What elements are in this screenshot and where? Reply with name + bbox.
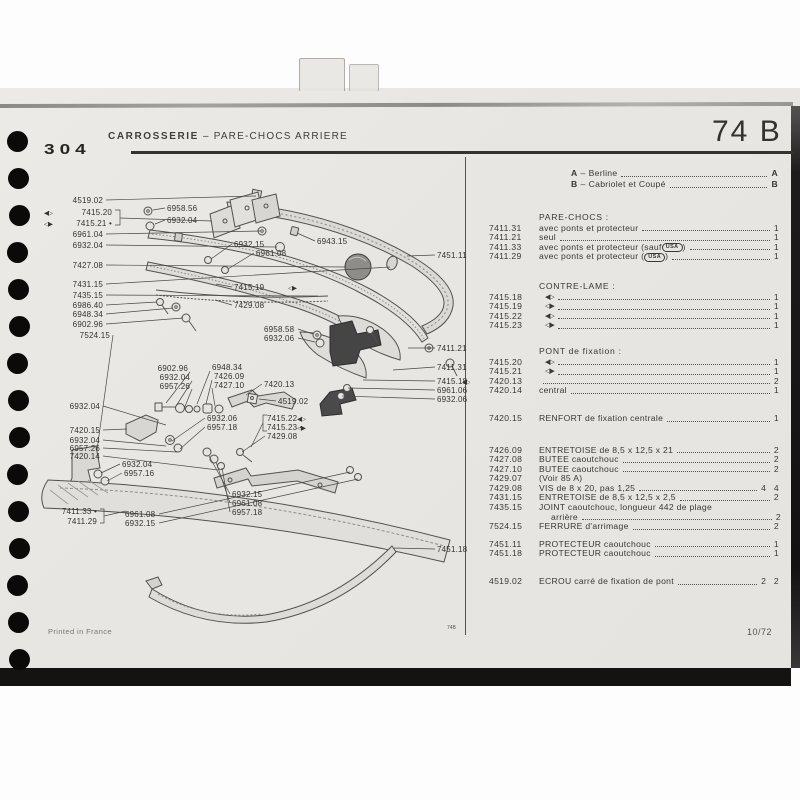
leader-line — [251, 423, 263, 447]
parts-row: 7411.29avec ponts et protecteur (USA)1 — [489, 252, 781, 262]
parts-section: PONT de fixation :7415.20◀▷17415.21◁▶174… — [489, 347, 781, 396]
part-reference: 7451.18 — [489, 549, 539, 559]
parts-row: 7426.09ENTRETOISE de 8,5 x 12,5 x 212 — [489, 446, 781, 456]
diagram-part-label: 4519.02 — [278, 397, 309, 406]
side-right-icon: ◁▶ — [539, 302, 554, 312]
diagram-part-label: 7411.33 • — [62, 507, 97, 516]
diagram-part-label: 7524.15 — [80, 331, 111, 340]
side-left-icon: ◀▷ — [539, 312, 554, 322]
plate-code-small: 74B — [447, 625, 456, 631]
dotted-leader — [623, 462, 770, 463]
diagram-part-label: 6932.04 — [70, 402, 101, 411]
part-reference: 7524.15 — [489, 522, 539, 532]
leader-line — [106, 231, 260, 234]
parts-row: 7411.31avec ponts et protecteur1 — [489, 224, 781, 234]
diagram-part-label: 6932.15 — [232, 490, 263, 499]
diagram-part-label: 6948.34 — [212, 363, 243, 372]
leader-line — [106, 302, 157, 305]
leader-line — [103, 448, 177, 452]
dotted-leader — [678, 584, 757, 585]
parts-section: 7451.11PROTECTEUR caoutchouc17451.18PROT… — [489, 540, 781, 559]
diagram-part-label: 7427.08 — [73, 261, 104, 270]
part-reference: 7435.15 — [489, 503, 539, 513]
leader-line — [120, 218, 212, 221]
side-left-icon: ◀▷ — [462, 378, 470, 386]
scanned-catalog-page: 304 CARROSSERIE – PARE-CHOCS ARRIERE 74 … — [0, 0, 800, 800]
diagram-part-label: 6961.08 — [256, 249, 287, 258]
dotted-leader — [558, 309, 770, 310]
plate-number: 74 B — [712, 115, 782, 149]
quantity: 1 — [774, 386, 781, 396]
diagram-part-label: 6961.04 — [73, 230, 104, 239]
dotted-leader — [621, 176, 767, 177]
leader-line — [153, 208, 165, 210]
dotted-leader — [690, 249, 770, 250]
leader-line — [172, 418, 205, 441]
parts-row: 7427.10BUTEE caoutchouc2 — [489, 465, 781, 475]
diagram-part-label: 6932.04 — [73, 241, 104, 250]
parts-section-title: PONT de fixation : — [539, 347, 781, 357]
dotted-leader — [670, 187, 768, 188]
leader-line — [101, 464, 120, 473]
part-description-suffix: ) — [683, 243, 686, 253]
parts-section: CONTRE-LAME :7415.18◀▷17415.19◁▶17415.22… — [489, 282, 781, 331]
leader-line — [363, 380, 435, 381]
dotted-leader — [560, 240, 770, 241]
leader-line — [297, 233, 315, 241]
dotted-leader — [558, 318, 770, 319]
dotted-leader — [655, 556, 770, 557]
parts-section-title: PARE-CHOCS : — [539, 213, 781, 223]
diagram-part-label: 6957.16 — [124, 469, 155, 478]
part-description: FERRURE d'arrimage — [539, 522, 629, 532]
leader-line — [393, 367, 435, 370]
part-reference: 7420.14 — [489, 386, 539, 396]
dotted-leader — [639, 490, 757, 491]
diagram-part-label: 7429.08 — [234, 301, 265, 310]
parts-section: 7426.09ENTRETOISE de 8,5 x 12,5 x 212742… — [489, 446, 781, 532]
parts-row: 7429.07(Voir 85 A) — [489, 474, 781, 484]
diagram-part-label: 7411.31 — [437, 363, 467, 372]
diagram-part-label: 6961.08 — [232, 499, 263, 508]
section-name: CARROSSERIE — [108, 131, 199, 142]
dotted-leader — [543, 383, 770, 384]
quantity: 1 — [774, 252, 781, 262]
diagram-part-label: 7415.22 — [267, 414, 298, 423]
dotted-leader — [642, 230, 770, 231]
leader-line — [206, 380, 212, 404]
dotted-leader — [623, 471, 770, 472]
part-description: avec ponts et protecteur ( — [539, 252, 644, 262]
quantity: 2 — [774, 493, 781, 503]
diagram-part-label: 7415.19 — [234, 283, 265, 292]
parts-section: 4519.02ECROU carré de fixation de pont2 … — [489, 577, 781, 587]
leader-line — [228, 253, 254, 269]
part-description-suffix: ) — [665, 252, 668, 262]
parts-row-continuation: arrière2 — [489, 513, 781, 523]
diagram-part-label: 7451.18 — [437, 545, 468, 554]
dotted-leader — [677, 452, 770, 453]
section-subtitle: PARE-CHOCS ARRIERE — [214, 131, 348, 142]
issue-date: 10/72 — [747, 627, 772, 637]
leader-line — [103, 429, 127, 430]
part-reference: 7420.15 — [489, 414, 539, 424]
diagram-part-label: 6958.58 — [264, 325, 295, 334]
legend-value: A — [771, 168, 778, 179]
diagram-part-label: 6961.08 — [125, 510, 156, 519]
parts-row: 7415.18◀▷1 — [489, 293, 781, 303]
diagram-part-label: 6932.04 — [167, 216, 198, 225]
part-description: RENFORT de fixation centrale — [539, 414, 663, 424]
parts-row: 7415.23◁▶1 — [489, 321, 781, 331]
diagram-part-label: 6932.04 — [160, 373, 191, 382]
leader-line — [180, 427, 205, 449]
binder-hole — [9, 649, 30, 670]
side-left-icon: ◀▷ — [539, 293, 554, 303]
parts-section-title: CONTRE-LAME : — [539, 282, 781, 292]
side-right-icon: ◁▶ — [539, 367, 554, 377]
quantity: 2 — [774, 465, 781, 475]
diagram-part-label: 6932.06 — [207, 414, 238, 423]
dotted-leader — [558, 299, 770, 300]
printed-in-france-note: Printed in France — [48, 627, 112, 636]
parts-row: 7420.132 — [489, 377, 781, 387]
parts-section: PARE-CHOCS :7411.31avec ponts et protect… — [489, 213, 781, 262]
dotted-leader — [655, 546, 770, 547]
diagram-part-label: 7415.20 — [82, 208, 113, 217]
side-left-icon: ◀▷ — [297, 415, 306, 423]
page-title: CARROSSERIE – PARE-CHOCS ARRIERE — [108, 131, 348, 142]
diagram-part-label: 7451.11 — [437, 251, 467, 260]
leader-line — [107, 473, 122, 481]
side-right-icon: ◁▶ — [539, 321, 554, 331]
diagram-part-label: 6986.40 — [73, 301, 104, 310]
legend-row: B–Cabriolet et CoupéB — [571, 179, 778, 190]
parts-row: 4519.02ECROU carré de fixation de pont2 … — [489, 577, 781, 587]
diagram-part-label: 7435.15 — [73, 291, 104, 300]
diagram-part-label: 7411.21 — [437, 344, 467, 353]
diagram-part-label: 6932.06 — [437, 395, 468, 404]
parts-section: 7420.15RENFORT de fixation centrale1 — [489, 414, 781, 424]
dotted-leader — [582, 519, 772, 520]
legend-dash: – — [578, 179, 589, 190]
dotted-leader — [633, 529, 770, 530]
exploded-parts-diagram: 4519.027415.207415.21 •6961.046932.04742… — [0, 155, 470, 640]
diagram-part-label: 7420.15 — [70, 426, 101, 435]
parts-row: 7451.18PROTECTEUR caoutchouc1 — [489, 549, 781, 559]
dotted-leader — [558, 364, 770, 365]
parts-row: 7420.14central1 — [489, 386, 781, 396]
dotted-leader — [680, 500, 770, 501]
dotted-leader — [667, 421, 770, 422]
page-tab — [349, 64, 379, 91]
parts-row: 7415.22◀▷1 — [489, 312, 781, 322]
diagram-part-label: 4519.02 — [73, 196, 104, 205]
dotted-leader — [558, 374, 770, 375]
leader-line — [106, 318, 183, 324]
diagram-part-label: 6958.56 — [167, 204, 198, 213]
parts-row: 7524.15FERRURE d'arrimage2 — [489, 522, 781, 532]
quantity: 2 — [774, 522, 781, 532]
quantity: 2 2 — [761, 577, 781, 587]
dotted-leader — [672, 259, 770, 260]
parts-row: 7420.15RENFORT de fixation centrale1 — [489, 414, 781, 424]
quantity: 1 — [774, 414, 781, 424]
diagram-part-label: 6957.18 — [207, 423, 238, 432]
diagram-part-label: 7426.09 — [214, 372, 245, 381]
side-left-icon: ◀▷ — [44, 209, 53, 217]
part-reference: 7415.23 — [489, 321, 539, 331]
diagram-part-label: 6957.26 — [160, 382, 191, 391]
parts-row: 7415.20◀▷1 — [489, 358, 781, 368]
part-reference: 7411.29 — [489, 252, 539, 262]
diagram-part-label: 6932.15 — [234, 240, 265, 249]
header-rule — [131, 151, 793, 154]
parts-row: 7415.21◁▶1 — [489, 367, 781, 377]
diagram-part-label: 6902.96 — [158, 364, 189, 373]
diagram-part-label: 7415.21 • — [76, 219, 112, 228]
dotted-leader — [558, 328, 770, 329]
diagram-part-label: 7429.08 — [267, 432, 298, 441]
parts-row: 7415.19◁▶1 — [489, 302, 781, 312]
side-right-icon: ◁▶ — [44, 220, 53, 228]
page-tab — [299, 58, 345, 91]
diagram-part-label: 7420.13 — [264, 380, 295, 389]
diagram-part-label: 6943.15 — [317, 237, 348, 246]
leader-line — [106, 308, 173, 314]
quantity: 1 — [774, 549, 781, 559]
leader-line — [115, 210, 120, 225]
leader-line — [407, 255, 435, 256]
diagram-part-label: 7427.10 — [214, 381, 245, 390]
leader-line — [103, 440, 166, 446]
diagram-part-label: 7431.15 — [73, 280, 104, 289]
legend-dash: – — [578, 168, 589, 179]
leader-line — [103, 456, 218, 470]
page-bottom-edge — [0, 668, 791, 686]
parts-row: 7427.08BUTEE caoutchouc2 — [489, 455, 781, 465]
legend-label: Cabriolet et Coupé — [589, 179, 666, 190]
side-left-icon: ◀▷ — [539, 358, 554, 368]
part-reference: 4519.02 — [489, 577, 539, 587]
part-description: ECROU carré de fixation de pont — [539, 577, 674, 587]
diagram-part-label: 7420.14 — [70, 452, 101, 461]
legend-label: Berline — [589, 168, 618, 179]
body-style-legend: A–BerlineAB–Cabriolet et CoupéB — [571, 168, 778, 190]
diagram-part-label: 6932.04 — [122, 460, 153, 469]
legend-row: A–BerlineA — [571, 168, 778, 179]
parts-row: 7435.15JOINT caoutchouc, longueur 442 de… — [489, 503, 781, 513]
diagram-part-label: 6932.06 — [264, 334, 295, 343]
part-description: PROTECTEUR caoutchouc — [539, 549, 651, 559]
leader-line — [348, 388, 435, 390]
leader-line — [197, 371, 210, 404]
legend-value: B — [771, 179, 778, 190]
diagram-part-label: 6948.34 — [73, 310, 104, 319]
leader-line — [242, 436, 265, 452]
diagram-part-label: 7411.29 — [67, 517, 97, 526]
side-right-icon: ◁▶ — [288, 284, 297, 292]
quantity: 1 — [774, 321, 781, 331]
leader-line — [106, 295, 318, 296]
dotted-leader — [571, 393, 770, 394]
binder-hole — [7, 131, 28, 152]
side-right-icon: ◁▶ — [297, 424, 306, 432]
leader-line — [155, 220, 165, 224]
diagram-part-label: 6961.06 — [437, 386, 468, 395]
page-right-edge — [791, 106, 800, 668]
parts-list: PARE-CHOCS :7411.31avec ponts et protect… — [489, 213, 781, 587]
usa-badge: USA — [644, 253, 665, 262]
diagram-part-label: 6957.18 — [232, 508, 263, 517]
leader-line — [212, 388, 215, 406]
diagram-part-label: 6932.15 — [125, 519, 156, 528]
part-description: central — [539, 386, 567, 396]
title-dash: – — [203, 131, 210, 142]
diagram-part-label: 6902.96 — [73, 320, 104, 329]
